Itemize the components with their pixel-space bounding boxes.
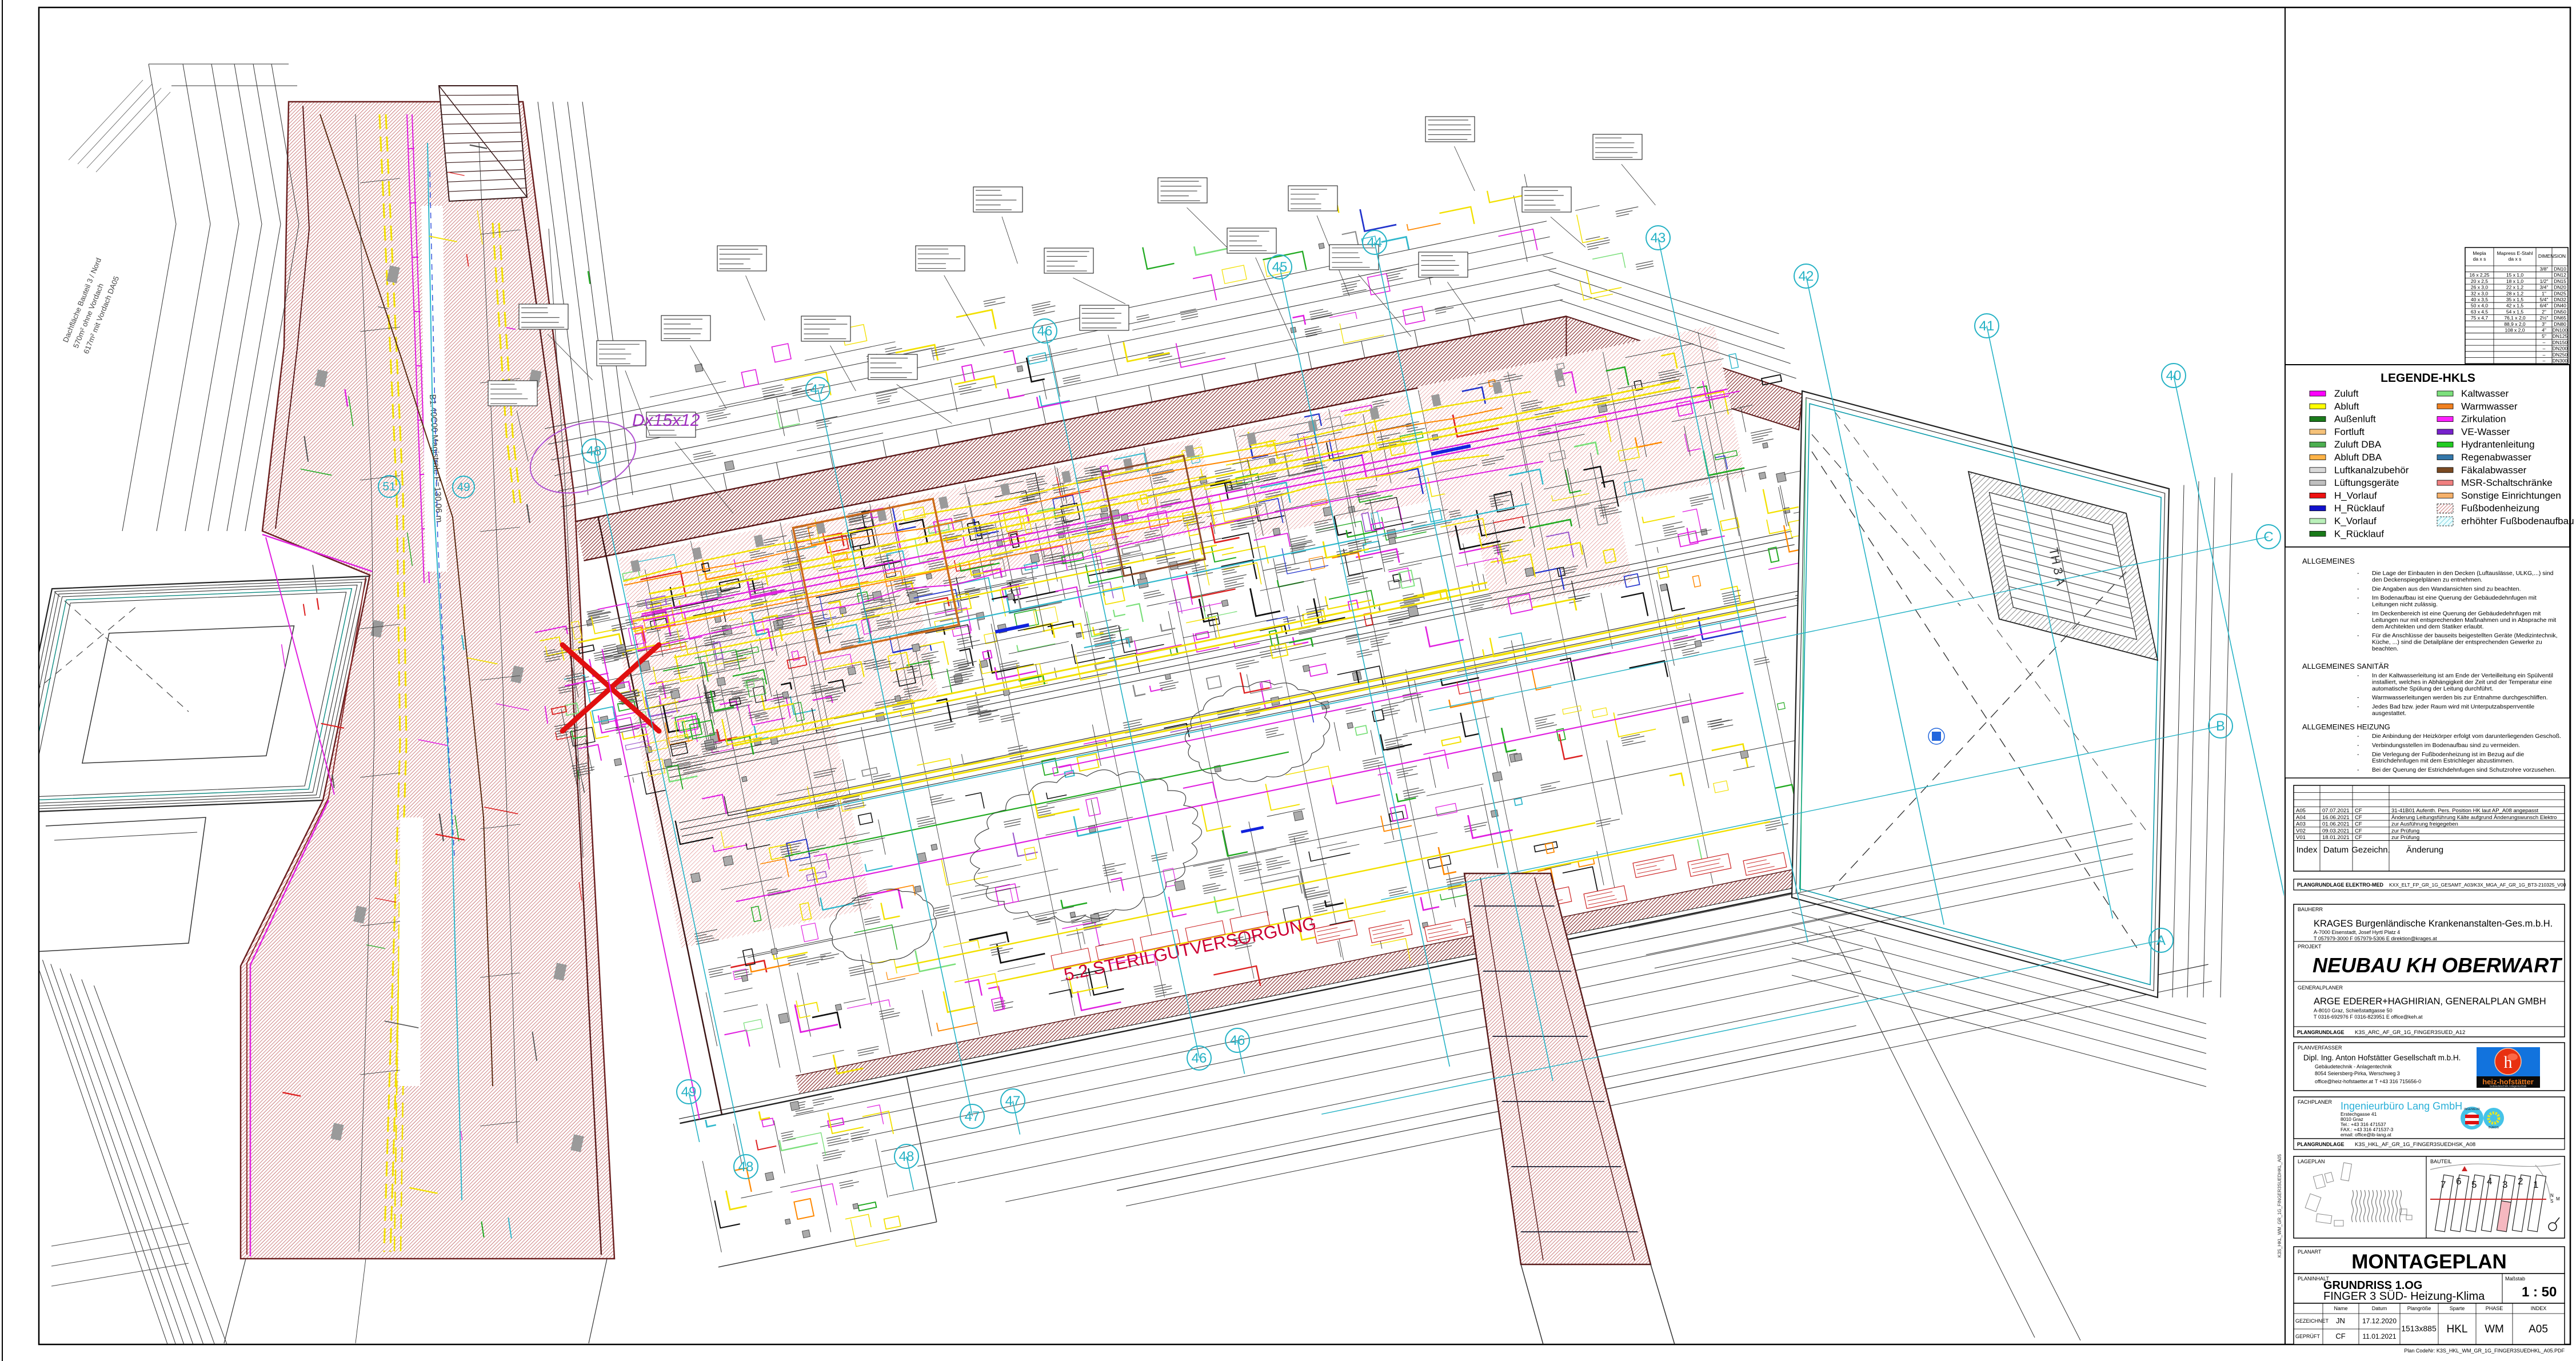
svg-text:46: 46 [1037, 324, 1053, 339]
svg-text:DN125: DN125 [2553, 333, 2568, 339]
svg-text:11.01.2021: 11.01.2021 [2362, 1332, 2396, 1340]
svg-text:54 x 1,5: 54 x 1,5 [2506, 309, 2524, 314]
svg-text:01.06.2021: 01.06.2021 [2322, 821, 2350, 828]
svg-text:DN200: DN200 [2553, 346, 2568, 352]
svg-text:51: 51 [382, 480, 396, 493]
svg-text:automatische Spülung der Leitu: automatische Spülung der Leitung durchfü… [2372, 685, 2493, 692]
svg-text:18.01.2021: 18.01.2021 [2322, 835, 2350, 841]
svg-text:75 x 4,7: 75 x 4,7 [2471, 315, 2489, 321]
svg-text:zur Ausführung freigegeben: zur Ausführung freigegeben [2391, 821, 2458, 828]
svg-text:zur Prüfung: zur Prüfung [2391, 828, 2419, 834]
svg-text:Index: Index [2297, 845, 2318, 855]
svg-text:43: 43 [1651, 230, 1666, 246]
svg-text:5/4": 5/4" [2540, 297, 2549, 302]
svg-text:ausgestattet.: ausgestattet. [2372, 710, 2406, 717]
svg-text:N: N [2550, 1193, 2554, 1198]
svg-text:DN12: DN12 [2554, 272, 2566, 278]
svg-text:Hydrantenleitung: Hydrantenleitung [2461, 439, 2535, 450]
svg-text:20 x 2,5: 20 x 2,5 [2471, 278, 2489, 284]
svg-text:LAGEPLAN: LAGEPLAN [2298, 1159, 2325, 1164]
svg-text:A: A [2156, 933, 2166, 948]
svg-text:dem Architekten und dem Statik: dem Architekten und dem Statiker erlaubt… [2372, 623, 2484, 630]
svg-text:DN20: DN20 [2554, 285, 2566, 290]
svg-text:GEPRÜFT: GEPRÜFT [2295, 1334, 2321, 1339]
svg-text:16.06.2021: 16.06.2021 [2322, 815, 2350, 821]
svg-text:DN10: DN10 [2554, 266, 2566, 272]
svg-text:H_Rücklauf: H_Rücklauf [2334, 503, 2385, 514]
svg-text:PHASE: PHASE [2486, 1306, 2503, 1311]
svg-text:email: office@ib-lang.at: email: office@ib-lang.at [2341, 1132, 2391, 1138]
svg-text:M: M [2556, 1196, 2560, 1202]
svg-text:erhöhter Fußbodenaufbau: erhöhter Fußbodenaufbau [2461, 516, 2574, 526]
svg-text:PLANGRUNDLAGE: PLANGRUNDLAGE [2297, 1142, 2345, 1147]
svg-text:Im Deckenbereich ist eine Quer: Im Deckenbereich ist eine Querung der Ge… [2372, 610, 2541, 617]
svg-text:Änderung: Änderung [2406, 845, 2443, 855]
svg-text:GENERALPLANER: GENERALPLANER [2298, 985, 2343, 991]
svg-text:-: - [2357, 594, 2359, 601]
svg-text:3: 3 [2502, 1179, 2507, 1190]
svg-text:DN50: DN50 [2554, 309, 2566, 314]
svg-text:4: 4 [2487, 1176, 2492, 1187]
svg-text:Die Lage der Einbauten in den: Die Lage der Einbauten in den Decken (Lu… [2372, 570, 2554, 577]
svg-text:MONTAGEPLAN: MONTAGEPLAN [2351, 1251, 2507, 1273]
svg-text:Zirkulation: Zirkulation [2461, 414, 2506, 425]
svg-text:46: 46 [1192, 1051, 1207, 1066]
svg-text:3/8": 3/8" [2540, 266, 2549, 272]
svg-text:40: 40 [2166, 368, 2182, 384]
svg-text:Datum: Datum [2323, 845, 2349, 855]
svg-text:47: 47 [1005, 1093, 1021, 1109]
svg-text:Warmwasser: Warmwasser [2461, 401, 2518, 412]
svg-text:07.07.2021: 07.07.2021 [2322, 808, 2350, 814]
svg-text:31-41B01 Aufenth. Pers. Positi: 31-41B01 Aufenth. Pers. Position HK laut… [2391, 808, 2539, 814]
svg-text:CF: CF [2355, 828, 2362, 834]
svg-text:40 x 3,5: 40 x 3,5 [2471, 297, 2489, 302]
svg-text:Lüftungsgeräte: Lüftungsgeräte [2334, 477, 2399, 488]
svg-text:Abluft DBA: Abluft DBA [2334, 452, 2382, 463]
svg-text:A05: A05 [2529, 1323, 2548, 1335]
svg-text:Fußbodenheizung: Fußbodenheizung [2461, 503, 2539, 514]
svg-text:Plan CodeNr: K3S_HKL_WM_GR_1G_: Plan CodeNr: K3S_HKL_WM_GR_1G_FINGER3SUE… [2404, 1348, 2565, 1354]
svg-text:K_Rücklauf: K_Rücklauf [2334, 528, 2384, 539]
svg-text:ALLGEMEINES: ALLGEMEINES [2302, 557, 2355, 565]
svg-text:da x s: da x s [2473, 256, 2486, 262]
svg-text:h: h [2504, 1053, 2513, 1072]
svg-text:Änderung Leitungsführung Kälte: Änderung Leitungsführung Kälte aufgrund … [2391, 815, 2557, 821]
svg-text:Mapress E-Stahl: Mapress E-Stahl [2497, 250, 2533, 256]
svg-text:DN25: DN25 [2554, 290, 2566, 296]
svg-text:46: 46 [1230, 1033, 1245, 1048]
svg-text:6: 6 [2456, 1176, 2461, 1187]
svg-text:1/2": 1/2" [2540, 278, 2549, 284]
svg-text:Name: Name [2334, 1306, 2347, 1311]
svg-text:48: 48 [586, 444, 602, 459]
svg-text:Außenluft: Außenluft [2334, 414, 2376, 425]
svg-text:-: - [2357, 672, 2359, 679]
svg-text:K3S_HKL_AF_GR_1G_FINGER3SUEDHS: K3S_HKL_AF_GR_1G_FINGER3SUEDHSK_A08 [2355, 1142, 2475, 1148]
svg-text:PLANGRUNDLAGE: PLANGRUNDLAGE [2297, 1029, 2345, 1035]
svg-text:DN250: DN250 [2553, 352, 2568, 357]
svg-text:-: - [2357, 751, 2359, 758]
svg-text:DN15: DN15 [2554, 278, 2566, 284]
svg-text:HKL: HKL [2447, 1323, 2468, 1335]
svg-text:In der Kaltwasserleitung ist a: In der Kaltwasserleitung ist am Ende der… [2372, 672, 2553, 679]
svg-text:DN32: DN32 [2554, 297, 2566, 302]
svg-text:Leitungen nur mit entsprechend: Leitungen nur mit entsprechenden Maßnahm… [2372, 617, 2556, 624]
svg-text:Dipl. Ing. Anton Hofstätter Ge: Dipl. Ing. Anton Hofstätter Gesellschaft… [2303, 1053, 2461, 1062]
svg-text:2½": 2½" [2540, 315, 2549, 321]
svg-text:KXX_ELT_FP_GR_1G_GESAMT_A03/K3: KXX_ELT_FP_GR_1G_GESAMT_A03/K3X_MGA_AF_G… [2389, 882, 2566, 888]
svg-text:WM: WM [2485, 1323, 2504, 1335]
svg-text:108 x 2,0: 108 x 2,0 [2505, 328, 2525, 333]
svg-text:–: – [2543, 340, 2546, 345]
svg-text:PLANGRUNDLAGE ELEKTRO-MED: PLANGRUNDLAGE ELEKTRO-MED [2297, 882, 2383, 888]
svg-text:1 : 50: 1 : 50 [2522, 1284, 2557, 1300]
svg-text:2: 2 [2518, 1176, 2523, 1187]
svg-text:FACHPLANER: FACHPLANER [2298, 1099, 2333, 1105]
svg-text:4": 4" [2542, 328, 2546, 333]
svg-text:KRAGES Burgenländische Kranken: KRAGES Burgenländische Krankenanstalten-… [2314, 919, 2553, 929]
svg-text:Kaltwasser: Kaltwasser [2461, 388, 2509, 399]
svg-text:Datum: Datum [2372, 1306, 2387, 1311]
svg-text:-: - [2357, 585, 2359, 592]
svg-text:BAUTEIL: BAUTEIL [2430, 1159, 2452, 1164]
svg-text:K_Vorlauf: K_Vorlauf [2334, 516, 2377, 526]
svg-text:5: 5 [2471, 1179, 2477, 1190]
svg-text:INDEX: INDEX [2531, 1306, 2547, 1311]
svg-text:Im Bodenaufbau ist eine Querun: Im Bodenaufbau ist eine Querung der Gebä… [2372, 594, 2537, 601]
svg-text:CF: CF [2355, 821, 2362, 828]
svg-text:35 x 1,5: 35 x 1,5 [2506, 297, 2524, 302]
svg-text:41: 41 [1979, 318, 1995, 334]
svg-text:49: 49 [681, 1084, 697, 1100]
svg-text:47: 47 [965, 1109, 980, 1124]
svg-text:T 0316-692976 F 0316-8239: T 0316-692976 F 0316-823951 E office@keh… [2314, 1014, 2423, 1020]
svg-text:Regenabwasser: Regenabwasser [2461, 452, 2531, 463]
svg-text:Die Verlegung der Fußbodenheiz: Die Verlegung der Fußbodenheizung ist im… [2372, 751, 2524, 758]
svg-text:ALLGEMEINES SANITÄR: ALLGEMEINES SANITÄR [2302, 662, 2389, 670]
svg-text:49: 49 [457, 481, 470, 494]
svg-text:B: B [2216, 719, 2225, 734]
svg-text:15 x 1,0: 15 x 1,0 [2506, 272, 2524, 278]
svg-text:DN150: DN150 [2553, 340, 2568, 345]
svg-text:V02: V02 [2296, 828, 2306, 834]
svg-text:PROJEKT: PROJEKT [2298, 944, 2322, 949]
svg-text:DN300: DN300 [2553, 358, 2568, 364]
svg-text:Bei der Querung der Estrichdeh: Bei der Querung der Estrichdehnfugen sin… [2372, 767, 2556, 773]
svg-text:NEUBAU KH OBERWART: NEUBAU KH OBERWART [2313, 953, 2563, 977]
svg-text:CF: CF [2355, 835, 2362, 841]
svg-text:CF: CF [2355, 808, 2362, 814]
svg-text:Mepla: Mepla [2473, 250, 2486, 256]
svg-text:A-8010 Graz, Schießstattgasse: A-8010 Graz, Schießstattgasse 50 [2314, 1008, 2393, 1013]
svg-text:FINGER 3 SÜD- Heizung-Klima: FINGER 3 SÜD- Heizung-Klima [2323, 1290, 2485, 1303]
svg-text:1": 1" [2542, 290, 2546, 296]
svg-text:Gebäudetechnik - Anlagentechni: Gebäudetechnik - Anlagentechnik [2315, 1064, 2392, 1069]
svg-text:-: - [2357, 632, 2359, 639]
svg-text:den Deckenspiegelplänen zu ent: den Deckenspiegelplänen zu entnehmen. [2372, 576, 2482, 583]
svg-text:5": 5" [2542, 333, 2546, 339]
svg-text:beachten.: beachten. [2372, 645, 2398, 652]
svg-text:3": 3" [2542, 321, 2546, 327]
svg-text:26 x 3,0: 26 x 3,0 [2471, 285, 2489, 290]
svg-text:Luftkanalzubehör: Luftkanalzubehör [2334, 465, 2409, 476]
svg-text:Küche, ...) sind die Detailplä: Küche, ...) sind die Detailpläne der ent… [2372, 639, 2542, 646]
svg-text:Warmwasserleitungen werden bis: Warmwasserleitungen werden bis zur Entna… [2372, 695, 2548, 701]
svg-text:Gebäudetechnik Anlagentechni: Gebäudetechnik Anlagentechnik [2490, 1085, 2527, 1088]
svg-text:45: 45 [1272, 260, 1288, 275]
svg-text:47: 47 [810, 382, 826, 397]
svg-text:H_Vorlauf: H_Vorlauf [2334, 490, 2377, 501]
svg-text:DN100: DN100 [2553, 328, 2568, 333]
svg-text:–: – [2543, 358, 2546, 364]
svg-text:INGENIEUR: INGENIEUR [2464, 1108, 2480, 1111]
svg-text:-: - [2357, 767, 2359, 773]
svg-text:18 x 1,0: 18 x 1,0 [2506, 278, 2524, 284]
svg-text:K3S_HKL_WM_GR_1G_FINGER3SUEDHK: K3S_HKL_WM_GR_1G_FINGER3SUEDHKL_A05 [2277, 1154, 2282, 1258]
svg-text:Maßstab: Maßstab [2505, 1276, 2525, 1282]
svg-text:Die Anbindung der Heizkörper e: Die Anbindung der Heizkörper erfolgt vom… [2372, 733, 2561, 740]
svg-text:DN80: DN80 [2554, 321, 2566, 327]
svg-text:42 x 1,5: 42 x 1,5 [2506, 303, 2524, 309]
svg-text:Dx15x12: Dx15x12 [632, 411, 700, 430]
svg-text:16 x 2,25: 16 x 2,25 [2470, 272, 2490, 278]
svg-text:Plangröße: Plangröße [2407, 1306, 2431, 1311]
svg-text:VE-Wasser: VE-Wasser [2461, 426, 2510, 437]
svg-text:42: 42 [1799, 269, 1814, 284]
svg-text:88,9 x 2,0: 88,9 x 2,0 [2504, 321, 2526, 327]
svg-text:Für die Anschlüsse der bauseit: Für die Anschlüsse der bauseits beigeste… [2372, 632, 2558, 639]
svg-text:CF: CF [2335, 1332, 2345, 1340]
svg-text:22 x 1,2: 22 x 1,2 [2506, 285, 2524, 290]
svg-text:Gezeichn.: Gezeichn. [2351, 845, 2390, 855]
svg-text:Estrichdehnfugen mit dem Estri: Estrichdehnfugen mit dem Estrichleger ab… [2372, 757, 2514, 764]
svg-text:Zuluft: Zuluft [2334, 388, 2359, 399]
svg-text:Sonstige Einrichtungen: Sonstige Einrichtungen [2461, 490, 2561, 501]
svg-text:C: C [2263, 529, 2273, 545]
svg-text:K3S_ARC_AF_GR_1G_FINGER3SUED_A: K3S_ARC_AF_GR_1G_FINGER3SUED_A12 [2355, 1029, 2465, 1036]
svg-text:48: 48 [899, 1149, 914, 1164]
svg-text:A-7000 Eisenstadt, Josef Hyrtl: A-7000 Eisenstadt, Josef Hyrtl Platz 4 [2314, 929, 2400, 935]
svg-text:50 x 4,0: 50 x 4,0 [2471, 303, 2489, 309]
svg-text:44: 44 [1367, 235, 1383, 250]
svg-text:JN: JN [2336, 1316, 2345, 1325]
svg-text:1: 1 [2533, 1179, 2538, 1190]
svg-text:8054 Seiersberg-Pirka, Werschw: 8054 Seiersberg-Pirka, Werschweg 3 [2315, 1071, 2400, 1076]
svg-text:BÜROS: BÜROS [2489, 1125, 2499, 1129]
svg-text:2": 2" [2542, 309, 2546, 314]
svg-text:A05: A05 [2296, 808, 2306, 814]
svg-text:PLANART: PLANART [2298, 1249, 2322, 1255]
svg-text:V01: V01 [2296, 835, 2306, 841]
svg-text:63 x 4,5: 63 x 4,5 [2471, 309, 2489, 314]
svg-text:Sparte: Sparte [2450, 1306, 2465, 1311]
svg-text:installiert, welches in Abhäng: installiert, welches in Abhängigkeit der… [2372, 678, 2552, 685]
svg-text:BAUHERR: BAUHERR [2298, 907, 2323, 912]
svg-text:da x s: da x s [2509, 256, 2522, 262]
svg-text:-: - [2357, 704, 2359, 711]
svg-text:1513x885: 1513x885 [2401, 1324, 2437, 1333]
svg-text:-: - [2357, 733, 2359, 740]
svg-text:T 057979-3000 F 057979-53: T 057979-3000 F 057979-5306 E direktion@… [2314, 936, 2437, 941]
svg-text:Fäkalabwasser: Fäkalabwasser [2461, 465, 2527, 476]
svg-text:Abluft: Abluft [2334, 401, 2359, 412]
svg-text:office@heiz-hofstaetter.at: office@heiz-hofstaetter.at [2315, 1079, 2374, 1084]
svg-text:6/4": 6/4" [2540, 303, 2549, 309]
svg-text:09.03.2021: 09.03.2021 [2322, 828, 2350, 834]
svg-text:LEGENDE-HKLS: LEGENDE-HKLS [2381, 372, 2475, 385]
svg-text:A03: A03 [2296, 821, 2306, 828]
svg-text:Fortluft: Fortluft [2334, 426, 2365, 437]
svg-text:Jedes Bad bzw. jeder Raum wird: Jedes Bad bzw. jeder Raum wird mit Unter… [2372, 704, 2534, 711]
svg-text:-: - [2357, 742, 2359, 749]
svg-text:S: S [2550, 1199, 2553, 1204]
svg-text:DN65: DN65 [2554, 315, 2566, 321]
svg-text:zur Prüfung: zur Prüfung [2391, 835, 2419, 841]
svg-text:ARGE EDERER+HAGHIRIAN, GENERAL: ARGE EDERER+HAGHIRIAN, GENERALPLAN GMBH [2314, 996, 2546, 1007]
svg-text:7: 7 [2441, 1179, 2446, 1190]
svg-text:Leitungen nicht zulässig.: Leitungen nicht zulässig. [2372, 601, 2438, 608]
svg-text:CF: CF [2355, 815, 2362, 821]
svg-text:32 x 3,0: 32 x 3,0 [2471, 290, 2489, 296]
svg-text:PLANVERFASSER: PLANVERFASSER [2298, 1045, 2342, 1051]
svg-text:Ingenieurbüro Lang GmbH: Ingenieurbüro Lang GmbH [2341, 1100, 2462, 1112]
svg-text:3/4": 3/4" [2540, 285, 2549, 290]
svg-text:MSR-Schaltschränke: MSR-Schaltschränke [2461, 477, 2553, 488]
svg-text:DN40: DN40 [2554, 303, 2566, 309]
svg-text:A04: A04 [2296, 815, 2306, 821]
svg-text:-: - [2357, 695, 2359, 701]
svg-text:Die Angaben aus den Wandansich: Die Angaben aus den Wandansichten sind z… [2372, 585, 2521, 592]
svg-text:T +43 316 715656-0: T +43 316 715656-0 [2375, 1079, 2421, 1084]
svg-text:28 x 1,2: 28 x 1,2 [2506, 290, 2524, 296]
svg-text:76,1 x 2,0: 76,1 x 2,0 [2504, 315, 2526, 321]
svg-text:Verbindungsstellen im Bodenauf: Verbindungsstellen im Bodenaufbau sind z… [2372, 742, 2520, 749]
svg-text:ALLGEMEINES HEIZUNG: ALLGEMEINES HEIZUNG [2302, 723, 2390, 731]
svg-text:–: – [2543, 346, 2546, 352]
svg-text:17.12.2020: 17.12.2020 [2362, 1317, 2397, 1325]
svg-text:Zuluft DBA: Zuluft DBA [2334, 439, 2382, 450]
svg-text:–: – [2543, 352, 2546, 357]
svg-text:-: - [2357, 570, 2359, 577]
svg-text:-: - [2357, 610, 2359, 617]
svg-text:48: 48 [738, 1159, 754, 1175]
svg-text:GEZEICHNET: GEZEICHNET [2295, 1318, 2329, 1324]
